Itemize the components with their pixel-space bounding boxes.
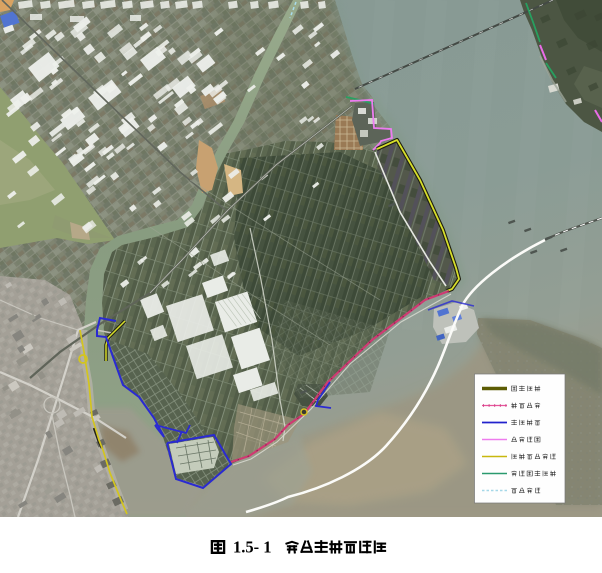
svg-text:1.5- 1: 1.5- 1 xyxy=(233,538,272,557)
